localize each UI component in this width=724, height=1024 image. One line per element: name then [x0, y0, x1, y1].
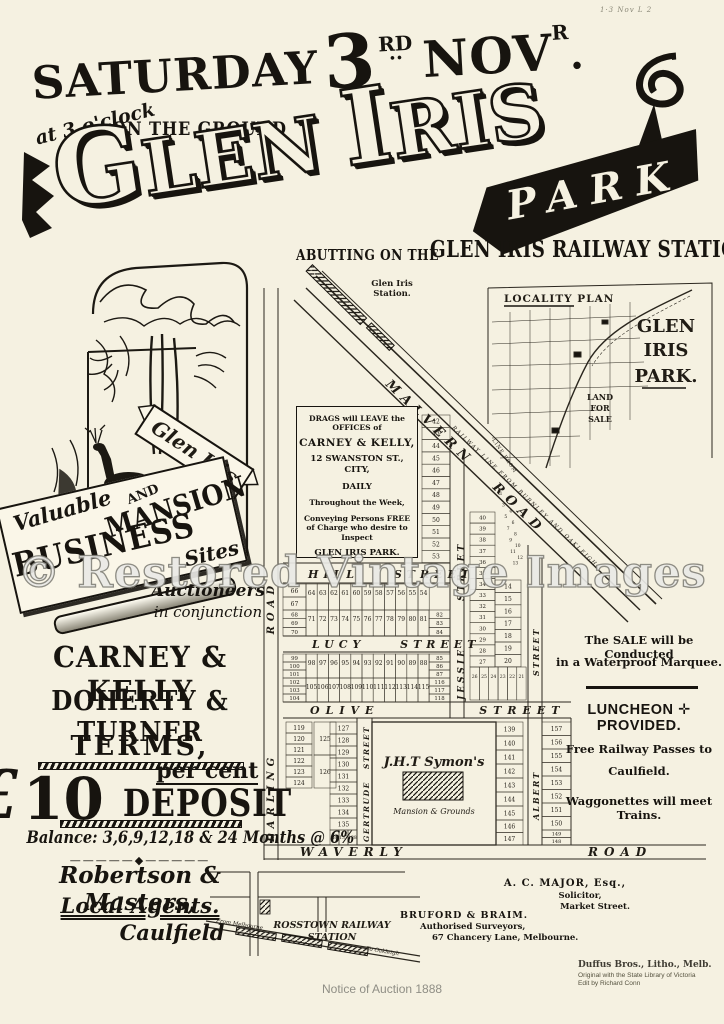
svg-text:63: 63 [319, 590, 327, 597]
drags-line: DRAGS will LEAVE the [297, 414, 417, 423]
solicitor-name: A. C. MAJOR, Esq., [470, 878, 660, 889]
svg-text:STATION: STATION [308, 932, 357, 943]
svg-text:64: 64 [308, 590, 316, 597]
svg-text:147: 147 [504, 836, 516, 843]
svg-text:53: 53 [432, 554, 440, 561]
svg-text:145: 145 [504, 810, 516, 817]
svg-text:153: 153 [551, 780, 563, 787]
source-credit: Original with the State Library of Victo… [578, 972, 696, 979]
svg-text:94: 94 [353, 660, 361, 667]
svg-text:105: 105 [306, 684, 318, 691]
right-divider-rule [586, 686, 698, 689]
title-ris: RIS [385, 66, 550, 177]
lithographer-credit: Duffus Bros., Litho., Melb. [578, 960, 712, 970]
drags-line: Conveying Persons FREE [297, 514, 417, 523]
svg-text:117: 117 [434, 688, 445, 694]
svg-text:18: 18 [504, 633, 512, 640]
svg-text:51: 51 [432, 529, 440, 536]
editor-credit: Edit by Richard Conn [578, 980, 640, 987]
svg-text:118: 118 [434, 696, 445, 702]
svg-text:67: 67 [291, 601, 299, 608]
svg-text:31: 31 [479, 615, 486, 621]
left-ribbon-curl-icon [22, 152, 54, 238]
svg-text:87: 87 [436, 672, 443, 678]
svg-text:140: 140 [504, 740, 516, 747]
svg-text:92: 92 [375, 660, 383, 667]
svg-text:16: 16 [504, 608, 512, 615]
svg-text:125: 125 [319, 736, 331, 743]
svg-text:133: 133 [338, 797, 350, 804]
svg-text:23: 23 [500, 674, 506, 680]
svg-text:39: 39 [479, 527, 486, 533]
svg-text:141: 141 [504, 754, 515, 761]
svg-text:93: 93 [364, 660, 372, 667]
svg-text:21: 21 [518, 674, 524, 680]
svg-text:71: 71 [308, 616, 316, 623]
svg-text:22: 22 [509, 674, 515, 680]
svg-text:61: 61 [341, 590, 349, 597]
svg-text:15: 15 [504, 596, 512, 603]
svg-text:121: 121 [293, 747, 304, 754]
svg-text:SALE: SALE [588, 414, 612, 424]
svg-text:132: 132 [338, 785, 350, 792]
svg-text:82: 82 [436, 612, 443, 618]
pound-symbol: £ [0, 769, 19, 822]
balance-terms: Balance: 3,6,9,12,18 & 24 Months @ 6% [26, 828, 253, 848]
svg-text:99: 99 [291, 656, 298, 662]
drags-line: 12 SWANSTON ST., CITY, [297, 454, 417, 475]
svg-text:83: 83 [436, 621, 443, 627]
svg-text:54: 54 [420, 590, 428, 597]
svg-text:52: 52 [432, 541, 440, 548]
svg-text:47: 47 [432, 480, 440, 487]
svg-text:24: 24 [490, 674, 496, 680]
drags-line: DAILY [297, 482, 417, 493]
svg-text:FOR: FOR [590, 403, 610, 413]
svg-text:20: 20 [504, 658, 512, 665]
solicitor-title: Solicitor, [520, 891, 640, 901]
svg-text:LAND: LAND [587, 392, 613, 402]
surveyors-title: Authorised Surveyors, [420, 922, 525, 932]
svg-text:77: 77 [375, 616, 383, 623]
svg-text:60: 60 [353, 590, 361, 597]
svg-text:Mansion & Grounds: Mansion & Grounds [392, 807, 475, 816]
svg-text:57: 57 [386, 590, 394, 597]
svg-text:130: 130 [338, 761, 350, 768]
abutting-label: ABUTTING ON THE [296, 246, 439, 264]
svg-text:17: 17 [504, 621, 512, 628]
svg-text:119: 119 [293, 725, 305, 732]
svg-text:66: 66 [291, 588, 299, 595]
svg-text:110: 110 [362, 684, 374, 691]
railway-station-label: GLEN IRIS RAILWAY STATION [430, 236, 724, 263]
svg-text:8: 8 [514, 533, 517, 538]
svg-text:HILL STREET: HILL STREET [307, 568, 474, 581]
svg-text:59: 59 [364, 590, 372, 597]
svg-text:LUCY STREET: LUCY STREET [311, 638, 480, 651]
svg-text:81: 81 [420, 616, 428, 623]
svg-text:112: 112 [384, 684, 396, 691]
svg-text:62: 62 [330, 590, 338, 597]
svg-text:48: 48 [432, 492, 440, 499]
svg-text:RAILWAY LINE FROM BURNLEY AND: RAILWAY LINE FROM BURNLEY AND OAKLEIGH [450, 424, 598, 568]
svg-text:73: 73 [330, 616, 338, 623]
svg-text:27: 27 [479, 659, 486, 665]
svg-text:50: 50 [432, 517, 440, 524]
locality-plan: LOCALITY PLAN GLEN IRIS PARK. LAND FOR S… [488, 283, 712, 475]
svg-text:128: 128 [338, 737, 350, 744]
svg-text:98: 98 [308, 660, 316, 667]
svg-text:56: 56 [397, 590, 405, 597]
svg-text:126: 126 [319, 769, 331, 776]
svg-text:144: 144 [504, 796, 516, 803]
svg-text:139: 139 [504, 726, 516, 733]
svg-text:70: 70 [291, 630, 298, 636]
svg-text:35: 35 [479, 571, 486, 577]
svg-text:96: 96 [330, 660, 338, 667]
svg-text:7: 7 [507, 527, 510, 532]
title-initial-g: G [44, 99, 150, 234]
svg-text:GLEN: GLEN [637, 316, 695, 337]
drags-line: CARNEY & KELLY, [297, 437, 417, 450]
svg-text:5: 5 [504, 515, 507, 520]
auction-poster: Glen Iris [0, 0, 724, 1024]
svg-text:120: 120 [293, 736, 305, 743]
svg-text:69: 69 [291, 621, 298, 627]
svg-text:49: 49 [432, 505, 440, 512]
surveyors-name: BRUFORD & BRAIM. [400, 910, 528, 921]
svg-text:107: 107 [328, 684, 340, 691]
svg-text:109: 109 [351, 684, 363, 691]
deposit-amount: 10 [23, 776, 104, 822]
svg-text:88: 88 [420, 660, 428, 667]
svg-text:IRIS: IRIS [644, 340, 689, 361]
deposit-line: £ 10 per cent DEPOSIT [8, 760, 272, 822]
svg-text:ALBERT STREET: ALBERT STREET [531, 628, 541, 821]
svg-text:131: 131 [338, 773, 349, 780]
drags-line: Inspect [297, 533, 417, 542]
waggonettes-label: Waggonettes will meet Trains. [556, 794, 722, 822]
svg-text:80: 80 [409, 616, 417, 623]
svg-text:9: 9 [509, 538, 512, 543]
svg-text:26: 26 [472, 674, 478, 680]
svg-text:108: 108 [339, 684, 351, 691]
svg-text:JESSIE STREET: JESSIE STREET [457, 542, 467, 702]
svg-text:100: 100 [289, 664, 300, 670]
title-initial-i: I [332, 62, 398, 191]
svg-text:106: 106 [317, 684, 329, 691]
svg-text:116: 116 [434, 680, 445, 686]
svg-text:143: 143 [504, 782, 516, 789]
svg-text:11: 11 [510, 550, 516, 555]
svg-text:13: 13 [513, 562, 519, 567]
svg-text:127: 127 [338, 725, 350, 732]
local-agents-place: Caulfield [40, 920, 304, 945]
railway-passes-line1: Free Railway Passes to [556, 742, 722, 756]
month-superscript: R [551, 20, 569, 45]
svg-text:134: 134 [338, 809, 350, 816]
svg-text:114: 114 [407, 684, 419, 691]
drags-line: GLEN IRIS PARK. [297, 548, 417, 559]
in-conjunction-label: in conjunction [148, 603, 268, 621]
svg-text:84: 84 [436, 630, 443, 636]
sale-conducted-line2: in a Waterproof Marquee. [556, 655, 722, 669]
svg-text:104: 104 [289, 696, 300, 702]
svg-text:74: 74 [341, 616, 349, 623]
svg-text:38: 38 [479, 538, 486, 544]
svg-text:OLIVE STREET: OLIVE STREET [310, 704, 565, 717]
svg-text:19: 19 [504, 645, 512, 652]
svg-text:40: 40 [479, 516, 486, 522]
svg-text:91: 91 [386, 660, 394, 667]
svg-text:46: 46 [432, 468, 440, 475]
notice-of-auction-caption: Notice of Auction 1888 [322, 982, 442, 996]
drags-line: Throughout the Week, [297, 498, 417, 507]
svg-text:85: 85 [436, 656, 443, 662]
svg-text:34: 34 [479, 582, 486, 588]
svg-text:90: 90 [397, 660, 405, 667]
auctioneers-label: Auctioneers [148, 581, 268, 601]
svg-text:113: 113 [395, 684, 407, 691]
svg-text:75: 75 [353, 616, 361, 623]
drags-line: of Charge who desire to [297, 523, 417, 532]
svg-text:36: 36 [479, 560, 486, 566]
svg-text:79: 79 [397, 616, 405, 623]
svg-text:78: 78 [386, 616, 394, 623]
pencil-annotation: 1·3 Nov L 2 [600, 6, 652, 14]
svg-text:146: 146 [504, 824, 516, 831]
svg-text:111: 111 [373, 684, 384, 691]
luncheon-provided-label: LUNCHEON ✛ PROVIDED. [556, 702, 722, 734]
svg-text:86: 86 [436, 664, 443, 670]
svg-text:32: 32 [479, 604, 486, 610]
svg-text:55: 55 [409, 590, 417, 597]
locality-labels: LOCALITY PLAN GLEN IRIS PARK. LAND FOR S… [490, 293, 697, 475]
svg-text:149: 149 [552, 832, 562, 838]
svg-text:68: 68 [291, 612, 298, 618]
svg-text:89: 89 [409, 660, 417, 667]
svg-text:12: 12 [517, 556, 523, 561]
svg-text:30: 30 [479, 626, 486, 632]
svg-text:45: 45 [432, 455, 440, 462]
spiral-ribbon-icon [638, 56, 680, 148]
drags-notice-box: DRAGS will LEAVE the OFFICES of CARNEY &… [296, 406, 418, 558]
svg-text:33: 33 [479, 593, 486, 599]
svg-text:25: 25 [481, 674, 487, 680]
svg-text:97: 97 [319, 660, 327, 667]
svg-text:LOCALITY PLAN: LOCALITY PLAN [504, 293, 614, 305]
surveyors-address: 67 Chancery Lane, Melbourne. [432, 933, 578, 943]
svg-text:10: 10 [515, 544, 521, 549]
month-period: . [568, 31, 585, 79]
railway-passes-line2: Caulfield. [556, 764, 722, 778]
svg-text:129: 129 [338, 749, 350, 756]
svg-text:101: 101 [289, 672, 299, 678]
svg-text:115: 115 [418, 684, 430, 691]
svg-text:Glen Iris: Glen Iris [371, 279, 413, 289]
svg-text:J.H.T Symon's: J.H.T Symon's [381, 755, 485, 770]
svg-text:103: 103 [289, 688, 300, 694]
svg-text:76: 76 [364, 616, 372, 623]
svg-text:95: 95 [341, 660, 349, 667]
local-agents-role: Local Agents. [8, 893, 272, 918]
svg-text:37: 37 [479, 549, 486, 555]
svg-text:142: 142 [504, 768, 516, 775]
svg-text:14: 14 [504, 583, 512, 590]
title-len: LEN [136, 99, 328, 214]
svg-text:58: 58 [375, 590, 383, 597]
svg-text:6: 6 [512, 521, 515, 526]
solicitor-address: Market Street. [530, 902, 660, 912]
svg-text:102: 102 [289, 680, 299, 686]
deposit-label: DEPOSIT [123, 785, 292, 822]
drags-line: OFFICES of [297, 423, 417, 432]
svg-text:72: 72 [319, 616, 327, 623]
svg-text:PARK.: PARK. [634, 366, 697, 387]
svg-text:Station.: Station. [373, 289, 411, 299]
svg-text:GERTRUDE STREET: GERTRUDE STREET [362, 726, 371, 842]
ornamental-rule-bottom [60, 820, 242, 828]
svg-text:44: 44 [432, 443, 440, 450]
